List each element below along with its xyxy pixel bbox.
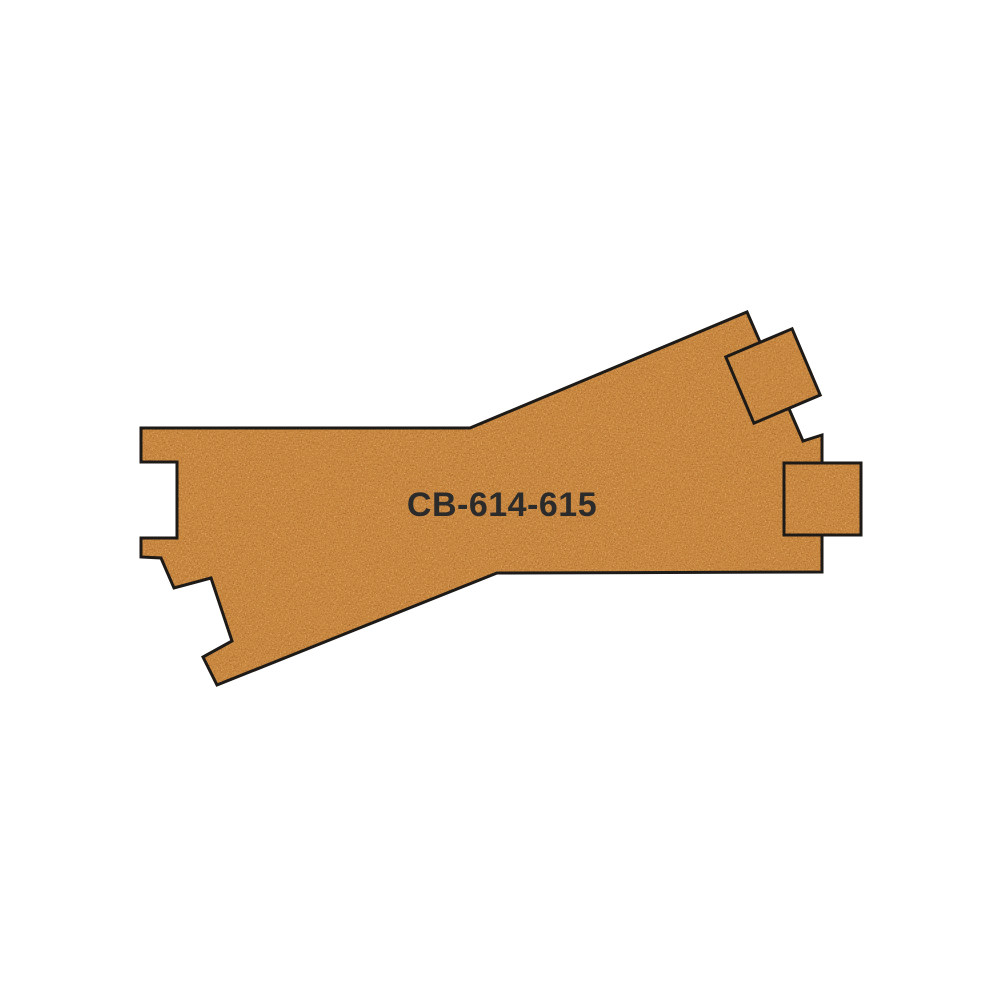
cork-square-tab [784, 463, 861, 535]
cork-underlay-illustration: CB-614-615 [0, 0, 1000, 1000]
part-number-label: CB-614-615 [407, 486, 597, 524]
product-image-canvas: CB-614-615 [0, 0, 1000, 1000]
